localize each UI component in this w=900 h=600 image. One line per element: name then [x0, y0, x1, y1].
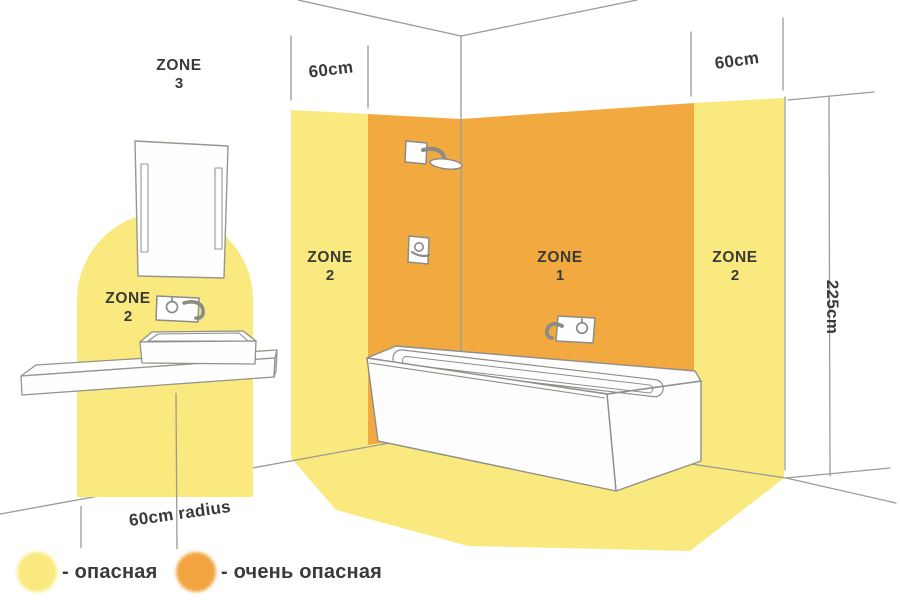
mirror-frame: [135, 141, 228, 278]
zone3-label: ZONE 3: [134, 57, 224, 92]
floor-edge-far-right: [786, 478, 896, 503]
mirror-light-strip-right: [215, 168, 222, 249]
dim-225cm-label: 225cm: [822, 269, 842, 345]
zone2-washbasin-number: 2: [88, 308, 168, 325]
zone2-right-wall-word: ZONE: [695, 249, 775, 266]
shower-mixer-plate: [408, 236, 429, 264]
zone2-washbasin-word: ZONE: [88, 290, 168, 307]
bath-faucet-plate: [556, 316, 595, 343]
shower-mixer-icon: [408, 236, 429, 264]
zone2-washbasin-label: ZONE 2: [88, 290, 168, 325]
zone2-left-wall-band: [291, 110, 368, 459]
zone2-left-wall-word: ZONE: [290, 249, 370, 266]
washbasin: [140, 331, 256, 364]
zone2-right-wall-band: [694, 98, 784, 478]
zone1-label: ZONE 1: [520, 249, 600, 284]
ceiling-edge-left: [298, 0, 461, 36]
zone2-left-wall-label: ZONE 2: [290, 249, 370, 284]
zone3-word: ZONE: [134, 57, 224, 74]
bathroom-zones-diagram: ZONE 3 ZONE 2 ZONE 1 ZONE 2 ZONE 2 60cm …: [0, 0, 900, 600]
legend-swatch-dangerous: [17, 552, 57, 592]
mirror-light-strip-left: [141, 164, 148, 252]
zone2-right-wall-label: ZONE 2: [695, 249, 775, 284]
dim-225cm-tick-bottom: [786, 468, 890, 478]
zone1-number: 1: [520, 267, 600, 284]
dim-225cm-tick-top: [788, 92, 874, 100]
shower-plate: [405, 141, 427, 164]
zone1-word: ZONE: [520, 249, 600, 266]
washbasin-front: [140, 341, 256, 364]
mirror: [135, 141, 228, 278]
legend-swatch-very-dangerous: [176, 552, 216, 592]
zone2-left-wall-number: 2: [290, 267, 370, 284]
zone3-number: 3: [134, 75, 224, 92]
legend-label-dangerous: - опасная: [62, 559, 157, 585]
zone2-right-wall-number: 2: [695, 267, 775, 284]
legend-label-very-dangerous: - очень опасная: [221, 559, 382, 585]
wall-zones: [291, 98, 784, 551]
ceiling-edge-right: [461, 0, 637, 36]
